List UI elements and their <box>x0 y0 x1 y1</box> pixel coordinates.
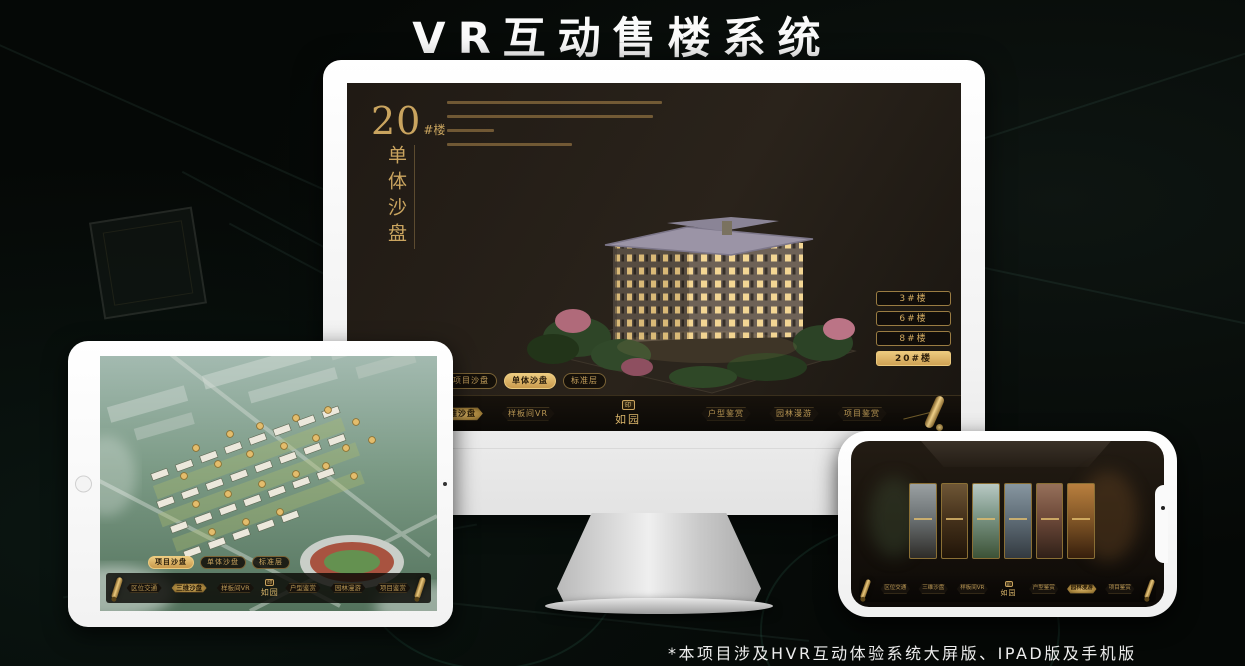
building-subtitle: 单体沙盘 <box>383 145 415 249</box>
tablet-nav-bar: 区位交通 三维沙盘 样板间VR 印 如园 户型鉴赏 园林漫游 项目鉴赏 <box>106 573 431 603</box>
nav-item-project-info[interactable]: 项目鉴赏 <box>835 407 889 421</box>
phone-notch <box>1155 485 1168 563</box>
tablet-nav-model-room-vr[interactable]: 样板间VR <box>215 583 255 594</box>
building-unit: #楼 <box>423 123 445 137</box>
tablet-nav-project-info[interactable]: 项目鉴赏 <box>374 583 412 594</box>
floor-button-6[interactable]: 6#楼 <box>876 311 951 326</box>
poster-background: VR互动售楼系统 20#楼 单体沙盘 <box>0 0 1245 666</box>
building-heading: 20#楼 <box>371 99 445 143</box>
tablet-nav-location[interactable]: 区位交通 <box>125 583 163 594</box>
nav-item-garden-tour[interactable]: 园林漫游 <box>767 407 821 421</box>
brand-name: 如园 <box>615 411 641 427</box>
phone-scroll-right-icon[interactable] <box>1144 579 1156 600</box>
phone-brand-logo: 印 如园 <box>1001 581 1017 598</box>
page-title: VR互动售楼系统 <box>0 4 1245 66</box>
tab-single-sandbox[interactable]: 单体沙盘 <box>504 373 556 389</box>
phone-nav-bar: 区位交通 三维沙盘 样板间VR 印 如园 户型鉴赏 园林漫游 项目鉴赏 <box>859 576 1156 602</box>
phone-nav-project-info[interactable]: 项目鉴赏 <box>1104 584 1136 594</box>
brand-seal-icon: 印 <box>622 400 635 410</box>
gallery-panel-garden[interactable] <box>972 483 1000 559</box>
phone-brand-name: 如园 <box>1001 588 1017 598</box>
floor-button-8[interactable]: 8#楼 <box>876 331 951 346</box>
floor-button-3[interactable]: 3#楼 <box>876 291 951 306</box>
gallery-panel-interior[interactable] <box>941 483 969 559</box>
scroll-handle-right-icon[interactable] <box>414 577 427 600</box>
tab-standard-floor[interactable]: 标准层 <box>563 373 606 389</box>
tablet-tab-standard-floor[interactable]: 标准层 <box>252 556 290 569</box>
monitor-stand <box>557 513 761 605</box>
phone-scroll-left-icon[interactable] <box>860 579 872 600</box>
tablet-nav-garden-tour[interactable]: 园林漫游 <box>329 583 367 594</box>
phone-camera-icon <box>1161 506 1165 510</box>
tablet-device: 项目沙盘 单体沙盘 标准层 区位交通 三维沙盘 样板间VR 印 如园 户型鉴赏 … <box>68 341 453 627</box>
scroll-handle-left-icon[interactable] <box>111 577 124 600</box>
phone-nav-3d-sandbox[interactable]: 三维沙盘 <box>917 584 949 594</box>
phone-nav-location[interactable]: 区位交通 <box>879 584 911 594</box>
building-number: 20 <box>371 99 421 143</box>
phone-nav-model-room-vr[interactable]: 样板间VR <box>955 584 989 594</box>
nav-item-floorplans[interactable]: 户型鉴赏 <box>699 407 753 421</box>
phone-nav-garden-tour[interactable]: 园林漫游 <box>1066 584 1098 594</box>
panorama-gallery <box>909 483 1095 559</box>
tablet-screen: 项目沙盘 单体沙盘 标准层 区位交通 三维沙盘 样板间VR 印 如园 户型鉴赏 … <box>100 356 437 611</box>
map-road-line <box>983 267 1245 335</box>
description-paragraph <box>447 101 662 157</box>
gallery-panel-autumn[interactable] <box>1036 483 1064 559</box>
tablet-nav-floorplans[interactable]: 户型鉴赏 <box>284 583 322 594</box>
phone-brand-seal-icon: 印 <box>1005 581 1013 587</box>
monitor-stand-base <box>545 598 773 614</box>
tablet-tab-single-sandbox[interactable]: 单体沙盘 <box>200 556 246 569</box>
tablet-camera-icon <box>443 482 447 486</box>
tablet-tab-project-sandbox[interactable]: 项目沙盘 <box>148 556 194 569</box>
floor-button-20[interactable]: 20#楼 <box>876 351 951 366</box>
tablet-tab-group: 项目沙盘 单体沙盘 标准层 <box>148 556 290 569</box>
nav-item-model-room-vr[interactable]: 样板间VR <box>499 407 557 421</box>
tablet-brand-logo: 印 如园 <box>261 579 279 598</box>
building-render <box>517 161 867 396</box>
gallery-panel-lounge[interactable] <box>1067 483 1095 559</box>
phone-device: 区位交通 三维沙盘 样板间VR 印 如园 户型鉴赏 园林漫游 项目鉴赏 <box>838 431 1177 617</box>
brand-logo: 印 如园 <box>615 400 641 427</box>
tablet-home-button[interactable] <box>75 476 92 493</box>
gallery-panel-building[interactable] <box>1004 483 1032 559</box>
interior-ceiling <box>921 441 1111 467</box>
phone-screen: 区位交通 三维沙盘 样板间VR 印 如园 户型鉴赏 园林漫游 项目鉴赏 <box>851 441 1164 607</box>
tablet-brand-name: 如园 <box>261 587 279 598</box>
sandbox-tab-group: 项目沙盘 单体沙盘 标准层 <box>445 373 606 389</box>
map-signboard <box>89 206 207 319</box>
phone-nav-floorplans[interactable]: 户型鉴赏 <box>1028 584 1060 594</box>
floor-button-group: 3#楼 6#楼 8#楼 20#楼 <box>876 291 951 366</box>
footnote: *本项目涉及HVR互动体验系统大屏版、IPAD版及手机版 <box>668 640 1137 664</box>
scroll-icon[interactable] <box>903 397 945 431</box>
gallery-panel-courtyard[interactable] <box>909 483 937 559</box>
tablet-nav-3d-sandbox[interactable]: 三维沙盘 <box>170 583 208 594</box>
tablet-brand-seal-icon: 印 <box>265 579 274 586</box>
